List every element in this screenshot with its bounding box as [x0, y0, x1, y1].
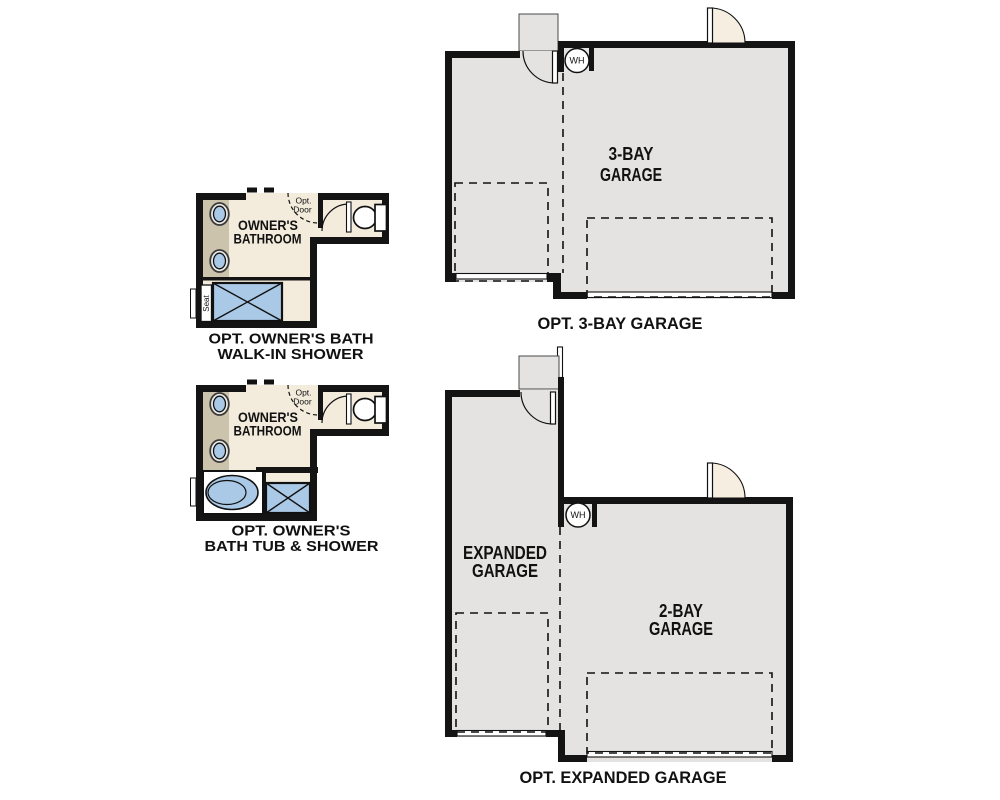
- bathtub-basin-icon: [208, 481, 246, 505]
- exterior-door-swing: [710, 8, 745, 43]
- room-label: 3-BAY: [609, 143, 655, 164]
- sink-basin-icon: [214, 253, 226, 269]
- window: [191, 289, 197, 318]
- plan-owners-bath-walkin: OWNER'S BATHROOM Opt. Door Seat OPT. OWN…: [190, 185, 396, 366]
- toilet-tank-icon: [375, 205, 387, 232]
- sink-basin-icon: [214, 443, 226, 459]
- plan-caption: OPT. 3-BAY GARAGE: [538, 314, 703, 333]
- window: [191, 478, 197, 506]
- toilet-icon: [354, 207, 377, 229]
- room-label: GARAGE: [649, 618, 713, 639]
- floor-plan-sheet: OWNER'S BATHROOM Opt. Door Seat OPT. OWN…: [0, 0, 1000, 800]
- opt-door-label: Door: [293, 205, 312, 215]
- entry-door-leaf: [553, 51, 558, 83]
- toilet-tank-icon: [375, 397, 387, 424]
- seat-label: Seat: [202, 295, 211, 312]
- water-heater-label: WH: [571, 510, 586, 520]
- wc-door-leaf: [347, 394, 352, 424]
- plan-expanded-garage: WH EXPANDED GARAGE 2-BAY GARAGE OPT. EXP…: [437, 345, 803, 793]
- wc-door-leaf: [347, 202, 352, 232]
- plan-caption: OPT. OWNER'S BATH: [209, 331, 374, 348]
- garage-door: [456, 274, 547, 280]
- plan-3bay-garage: WH 3-BAY GARAGE OPT. 3-BAY GARAGE: [440, 4, 802, 336]
- sink-basin-icon: [214, 396, 226, 412]
- entry-landing: [519, 356, 559, 389]
- water-heater-label: WH: [570, 56, 585, 66]
- plan-caption: WALK-IN SHOWER: [218, 346, 364, 363]
- exterior-door-leaf: [708, 463, 713, 498]
- room-label: BATHROOM: [234, 231, 302, 247]
- plan-owners-bath-tub-shower: OWNER'S BATHROOM Opt. Door OPT. OWNER'S …: [190, 377, 396, 559]
- plan-caption: OPT. EXPANDED GARAGE: [520, 768, 727, 787]
- room-label: GARAGE: [472, 560, 538, 581]
- entry-door-leaf: [551, 392, 556, 424]
- exterior-door-swing: [710, 463, 745, 498]
- plan-caption: BATH TUB & SHOWER: [205, 538, 379, 555]
- plan-caption: OPT. OWNER'S: [232, 523, 351, 540]
- entry-landing: [519, 14, 558, 51]
- opt-door-label: Door: [293, 397, 312, 407]
- sink-basin-icon: [214, 206, 226, 222]
- exterior-door-leaf: [708, 8, 713, 43]
- toilet-icon: [354, 399, 377, 421]
- room-label: BATHROOM: [234, 423, 302, 439]
- room-label: GARAGE: [600, 164, 662, 185]
